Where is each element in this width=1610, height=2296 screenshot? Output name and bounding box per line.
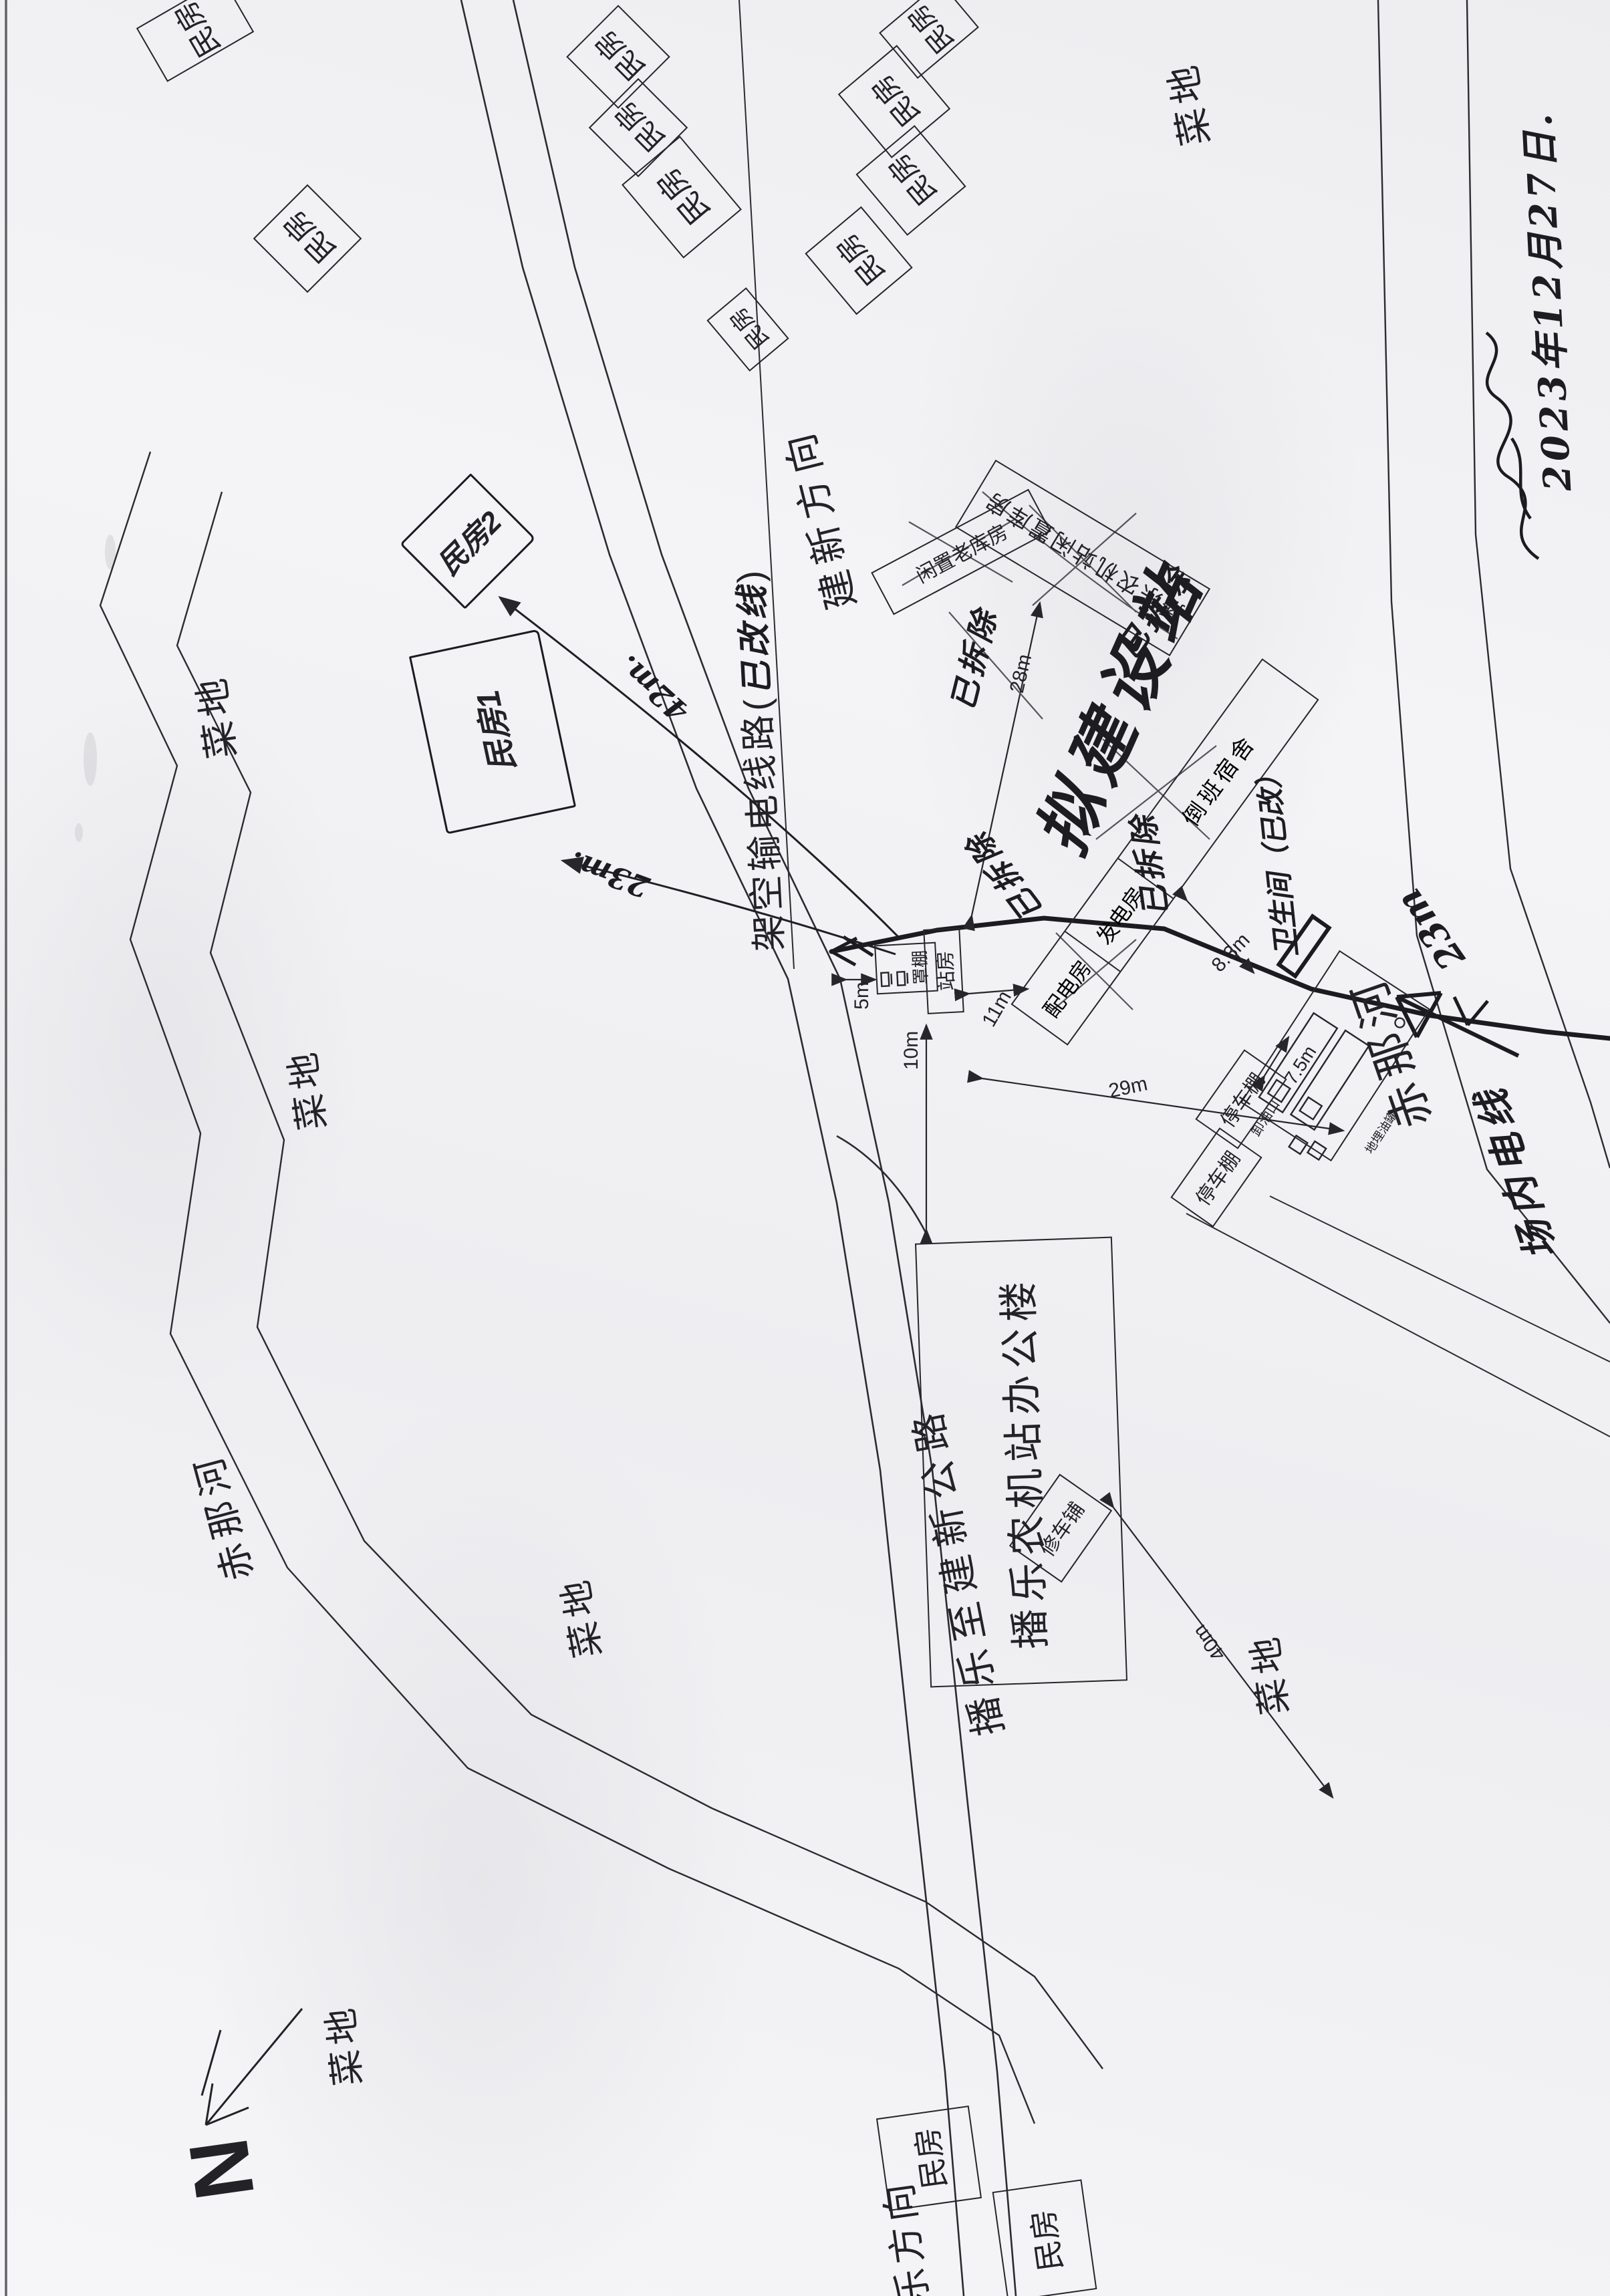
hand-house-1-label: 民房1 xyxy=(461,687,524,777)
repair-shop-label: 修车铺 xyxy=(1031,1495,1090,1562)
house-label: 民房 xyxy=(584,23,653,92)
power-dist-label: 配电房 xyxy=(1035,953,1097,1023)
field-label: 菜地 xyxy=(310,2001,372,2089)
fuel-canopy-label: 罩棚 xyxy=(906,950,933,986)
field-label: 菜地 xyxy=(1234,1629,1298,1719)
house-label: 民房 xyxy=(271,202,343,274)
hand-house-2-label: 民房2 xyxy=(426,500,510,583)
house-label: 民房 xyxy=(1019,2207,1071,2274)
paper-smudges xyxy=(75,535,116,842)
field-label: 菜地 xyxy=(272,1044,336,1134)
fuel-canopy: 罩棚 xyxy=(874,942,938,995)
house-label: 民房 xyxy=(825,226,893,295)
dim-5m: 5m xyxy=(851,982,874,1010)
office-label: 播乐农机站办公楼 xyxy=(986,1274,1057,1651)
overhead-line-printed-close: ) xyxy=(730,566,771,584)
house-box: 民房 xyxy=(992,2179,1097,2296)
scanned-site-sketch: 播乐农机站办公楼 站房 罩棚 配电房 发电房 倒班宿舍 闲置老库房 播乐农机站闲… xyxy=(0,0,1610,2296)
house-label: 民房 xyxy=(861,67,928,136)
house-label: 民房 xyxy=(645,160,718,235)
north-arrow xyxy=(202,2009,302,2125)
entrance-arc xyxy=(837,1136,930,1242)
site-map-landscape: 播乐农机站办公楼 站房 罩棚 配电房 发电房 倒班宿舍 闲置老库房 播乐农机站闲… xyxy=(0,0,1610,2296)
dim-10m: 10m xyxy=(900,1031,923,1070)
house-label: 民房 xyxy=(878,146,945,215)
overhead-line-hand-text: 已改线 xyxy=(732,582,777,696)
